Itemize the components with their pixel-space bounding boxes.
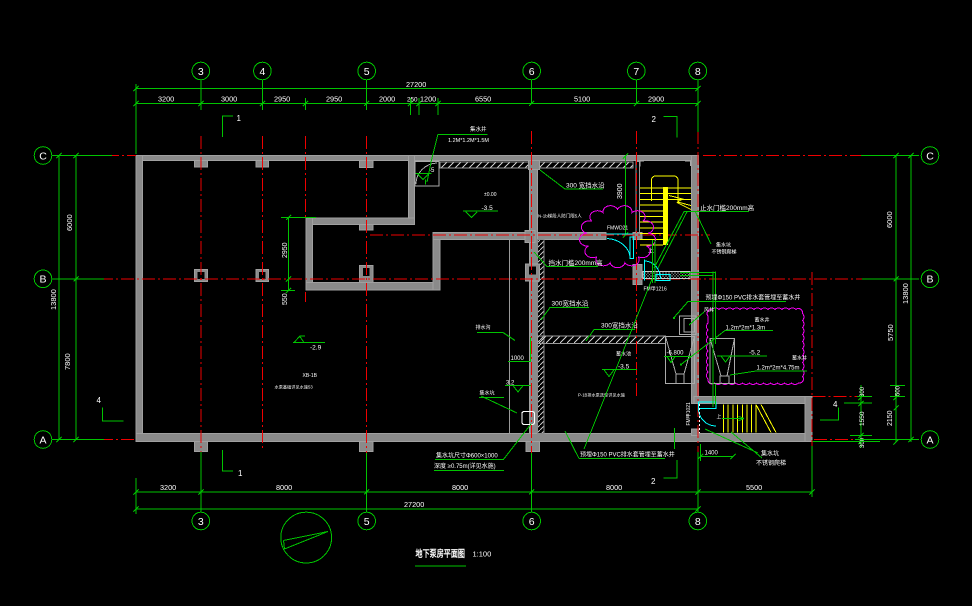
- svg-text:深度 ≥0.75m(详见水施): 深度 ≥0.75m(详见水施): [434, 462, 496, 470]
- svg-text:300 宽挡水沿: 300 宽挡水沿: [566, 181, 605, 190]
- svg-text:300宽挡水沿: 300宽挡水沿: [552, 299, 589, 308]
- svg-text:4: 4: [97, 396, 102, 405]
- svg-text:4: 4: [833, 400, 838, 409]
- svg-text:2950: 2950: [282, 242, 289, 258]
- svg-text:300: 300: [860, 437, 866, 448]
- svg-text:不锈钢爬梯: 不锈钢爬梯: [712, 249, 737, 256]
- svg-text:排水沟: 排水沟: [476, 324, 491, 331]
- svg-text:FM甲1021: FM甲1021: [686, 402, 692, 426]
- svg-text:集水坑尺寸Φ600×1000: 集水坑尺寸Φ600×1000: [436, 452, 498, 460]
- svg-text:A: A: [39, 434, 46, 446]
- svg-text:P-1B排水泵选型详见水施: P-1B排水泵选型详见水施: [578, 392, 626, 399]
- svg-text:1400: 1400: [705, 451, 719, 457]
- svg-text:8: 8: [695, 516, 701, 528]
- svg-text:3: 3: [198, 66, 204, 78]
- svg-text:C: C: [926, 150, 934, 162]
- svg-text:2950: 2950: [326, 95, 342, 104]
- svg-text:1.2M*1.2M*1.5M: 1.2M*1.2M*1.5M: [448, 138, 489, 144]
- svg-text:8: 8: [695, 66, 701, 78]
- svg-text:挡水门槛200mm高: 挡水门槛200mm高: [549, 258, 604, 267]
- svg-text:2900: 2900: [648, 95, 664, 104]
- svg-text:1200: 1200: [420, 95, 436, 104]
- svg-text:B: B: [39, 274, 46, 286]
- svg-text:1: 1: [237, 114, 242, 123]
- svg-text:4: 4: [259, 66, 265, 78]
- svg-text:预埋Φ150 PVC排水套管埋至蓄水井: 预埋Φ150 PVC排水套管埋至蓄水井: [706, 294, 801, 302]
- svg-text:5: 5: [364, 66, 370, 78]
- svg-text:止水门槛200mm高: 止水门槛200mm高: [700, 203, 755, 212]
- svg-text:6000: 6000: [65, 214, 74, 231]
- svg-text:500: 500: [896, 385, 902, 396]
- svg-text:B: B: [926, 274, 933, 286]
- svg-text:13800: 13800: [49, 289, 58, 310]
- svg-text:3900: 3900: [617, 183, 624, 199]
- svg-text:8000: 8000: [276, 483, 292, 492]
- svg-text:-2.9: -2.9: [310, 345, 322, 352]
- svg-text:-6.800: -6.800: [667, 351, 685, 357]
- svg-text:预埋Φ150 PVC排水套管埋至蓄水井: 预埋Φ150 PVC排水套管埋至蓄水井: [580, 451, 675, 459]
- svg-text:风井: 风井: [704, 307, 714, 314]
- svg-text:-5.2: -5.2: [749, 350, 761, 357]
- svg-text:2: 2: [651, 477, 656, 486]
- svg-text:集水坑: 集水坑: [480, 390, 495, 397]
- svg-text:蓄水井: 蓄水井: [792, 355, 807, 362]
- svg-text:地下泵房平面图: 地下泵房平面图: [416, 548, 466, 560]
- svg-text:集水井: 集水井: [470, 125, 487, 133]
- svg-text:FMWD21: FMWD21: [607, 226, 628, 232]
- svg-text:6: 6: [529, 66, 535, 78]
- svg-text:1550: 1550: [859, 411, 866, 426]
- svg-text:不锈钢爬梯: 不锈钢爬梯: [756, 459, 786, 467]
- svg-text:6000: 6000: [885, 211, 894, 228]
- svg-text:7800: 7800: [63, 353, 72, 370]
- svg-text:6: 6: [529, 516, 535, 528]
- svg-text:3200: 3200: [158, 95, 174, 104]
- svg-text:2000: 2000: [379, 95, 395, 104]
- svg-text:13800: 13800: [901, 283, 910, 304]
- svg-text:上: 上: [717, 414, 722, 421]
- svg-text:6550: 6550: [475, 95, 491, 104]
- svg-text:27200: 27200: [406, 80, 426, 89]
- svg-text:5500: 5500: [746, 483, 762, 492]
- svg-text:5100: 5100: [574, 95, 590, 104]
- svg-text:C: C: [39, 150, 47, 162]
- svg-text:2950: 2950: [274, 95, 290, 104]
- svg-text:550: 550: [282, 293, 289, 305]
- svg-text:N-1b梯段人防门限5人: N-1b梯段人防门限5人: [538, 213, 582, 220]
- svg-text:8000: 8000: [606, 483, 622, 492]
- svg-text:5: 5: [364, 516, 370, 528]
- svg-text:水泵基础详见水施53: 水泵基础详见水施53: [275, 384, 314, 391]
- svg-text:2: 2: [652, 115, 657, 124]
- svg-text:300: 300: [860, 386, 866, 397]
- svg-text:1: 1: [238, 469, 243, 478]
- svg-text:3200: 3200: [160, 483, 176, 492]
- svg-text:±0.00: ±0.00: [484, 192, 497, 198]
- svg-text:蓄水井: 蓄水井: [755, 317, 770, 324]
- svg-text:5750: 5750: [886, 324, 895, 341]
- svg-text:250: 250: [407, 97, 418, 104]
- svg-text:27200: 27200: [404, 500, 424, 509]
- svg-text:集水坑: 集水坑: [716, 242, 731, 249]
- svg-text:1:100: 1:100: [473, 550, 492, 559]
- svg-text:3: 3: [198, 516, 204, 528]
- svg-text:XB-1B: XB-1B: [303, 373, 318, 379]
- svg-text:8000: 8000: [452, 483, 468, 492]
- svg-text:3000: 3000: [221, 95, 237, 104]
- svg-text:7: 7: [633, 66, 639, 78]
- svg-text:2150: 2150: [887, 410, 894, 426]
- svg-text:A: A: [926, 434, 933, 446]
- svg-text:集水坑: 集水坑: [761, 450, 779, 458]
